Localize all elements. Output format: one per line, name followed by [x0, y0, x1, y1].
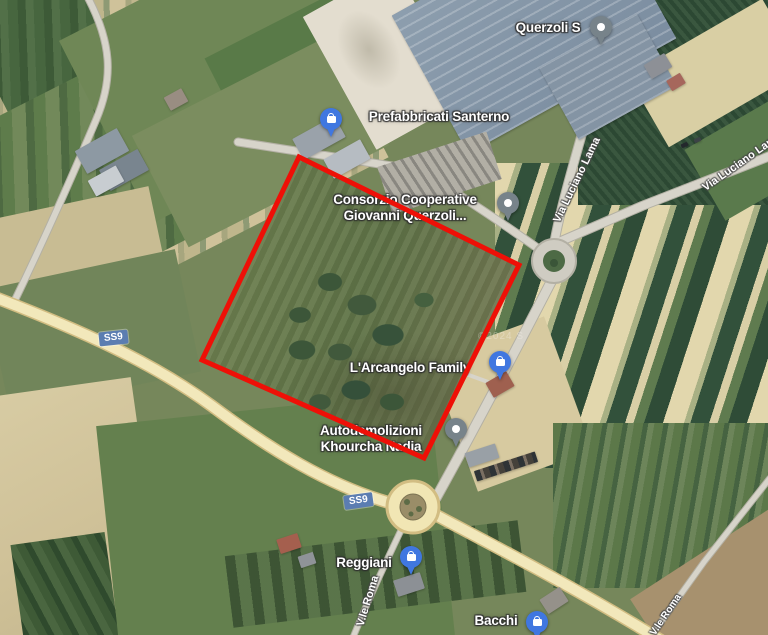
- shopping-bag-icon: [496, 359, 505, 366]
- field-bottomleft-shrubs: [10, 532, 120, 635]
- place-pin-icon: [504, 199, 512, 207]
- place-pin-icon: [597, 23, 605, 31]
- shopping-bag-icon: [533, 619, 542, 626]
- imagery-watermark: ©2024 S: [478, 331, 524, 342]
- place-label-consorzio[interactable]: Consorzio Cooperative Giovanni Querzoli.…: [333, 192, 477, 224]
- place-label-prefabbricati[interactable]: Prefabbricati Santerno: [369, 109, 509, 125]
- place-label-reggiani[interactable]: Reggiani: [336, 555, 391, 571]
- place-label-bacchi[interactable]: Bacchi: [474, 613, 517, 629]
- place-label-autodemolizioni[interactable]: Autodemolizioni Khourcha Nadia: [320, 423, 422, 455]
- place-label-consorzio-line2: Giovanni Querzoli...: [333, 208, 477, 224]
- place-pin-icon: [452, 425, 460, 433]
- place-label-autodemolizioni-line1: Autodemolizioni: [320, 423, 422, 439]
- satellite-map-canvas[interactable]: ©2024 S Via Luciano Lama Via Luciano Lam…: [0, 0, 768, 635]
- shopping-bag-icon: [327, 116, 336, 123]
- shopping-bag-icon: [407, 554, 416, 561]
- place-label-autodemolizioni-line2: Khourcha Nadia: [320, 439, 422, 455]
- place-label-querzoli[interactable]: Querzoli S: [516, 20, 581, 36]
- ss9-route-badge-west: SS9: [98, 330, 128, 347]
- place-label-consorzio-line1: Consorzio Cooperative: [333, 192, 477, 208]
- place-label-arcangelo[interactable]: L'Arcangelo Family: [350, 360, 470, 376]
